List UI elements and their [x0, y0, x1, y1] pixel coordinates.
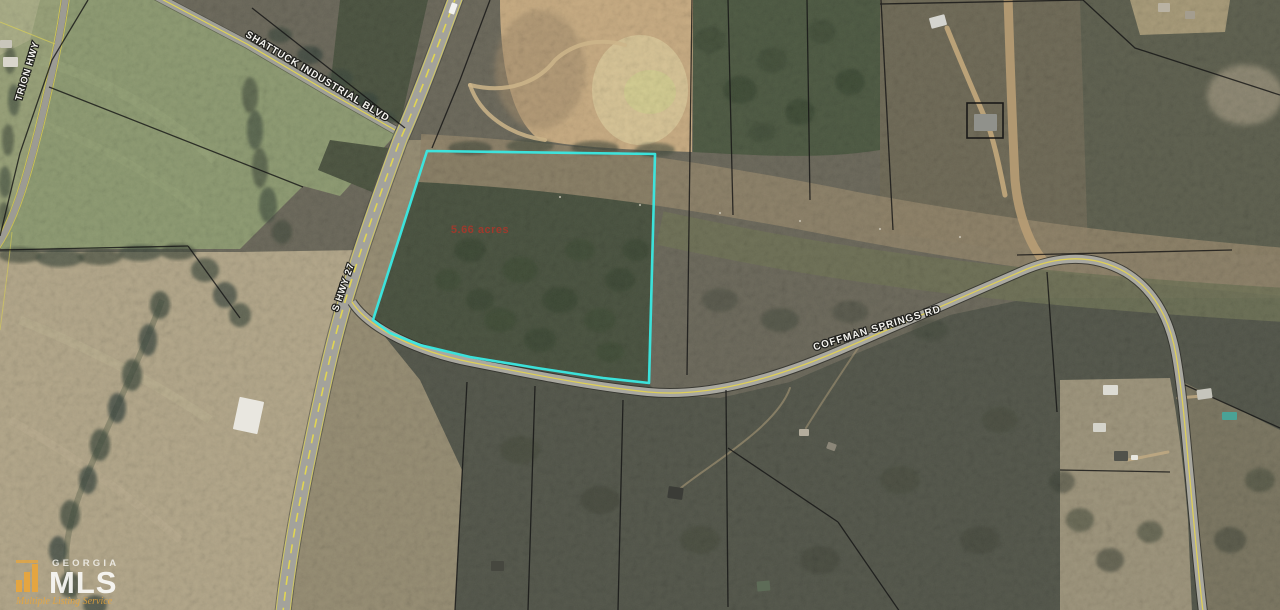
aerial-map[interactable]: SHATTUCK INDUSTRIAL BLVD TRION HWY S HWY…	[0, 0, 1280, 610]
building	[1093, 423, 1106, 432]
building	[1158, 3, 1170, 12]
terrain	[0, 0, 1280, 610]
building	[0, 40, 12, 48]
watermark-tagline-text: Multiple Listing Service	[15, 596, 113, 607]
building	[1196, 388, 1212, 400]
building	[1114, 451, 1128, 461]
building	[1103, 385, 1118, 395]
building	[1222, 412, 1237, 420]
acreage-label: 5.66 acres	[451, 224, 509, 236]
building	[1185, 11, 1195, 19]
listing-map-viewport: SHATTUCK INDUSTRIAL BLVD TRION HWY S HWY…	[0, 0, 1280, 610]
building	[757, 580, 771, 591]
building	[491, 561, 504, 571]
building	[974, 114, 997, 131]
building	[667, 486, 684, 500]
building	[799, 429, 809, 436]
building	[3, 57, 18, 67]
building	[1131, 455, 1138, 460]
watermark-mls-text: MLS	[49, 565, 117, 600]
